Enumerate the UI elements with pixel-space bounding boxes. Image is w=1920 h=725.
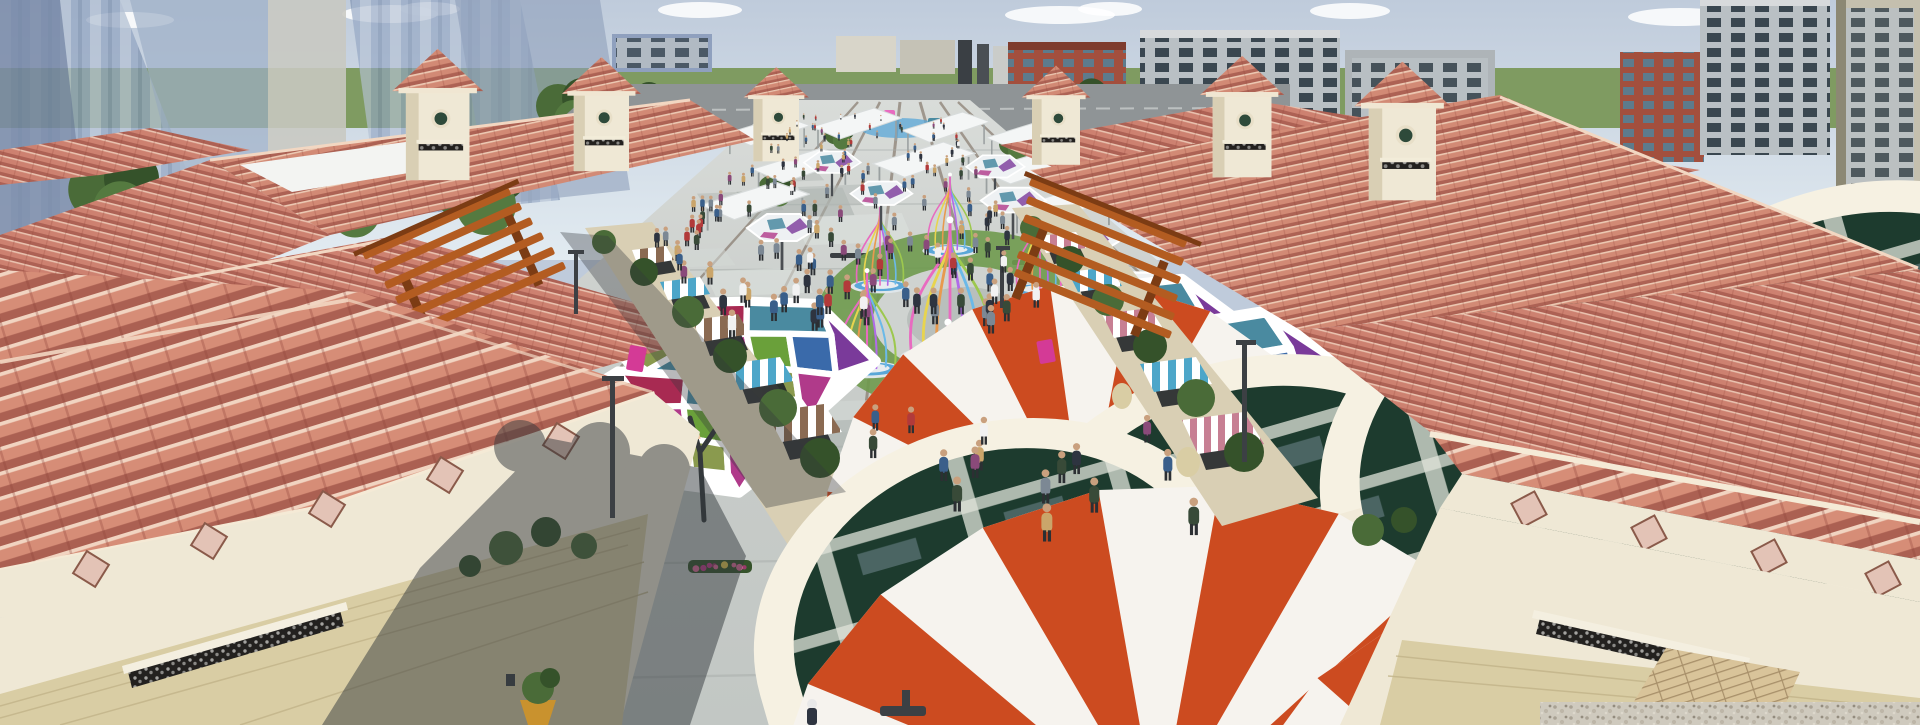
plaza-aerial-render — [0, 0, 1920, 725]
gravel-strip — [1540, 702, 1920, 725]
urn — [1112, 383, 1132, 409]
architectural-render — [0, 0, 1920, 725]
urn — [1176, 447, 1200, 477]
distant-white-building — [836, 36, 896, 72]
